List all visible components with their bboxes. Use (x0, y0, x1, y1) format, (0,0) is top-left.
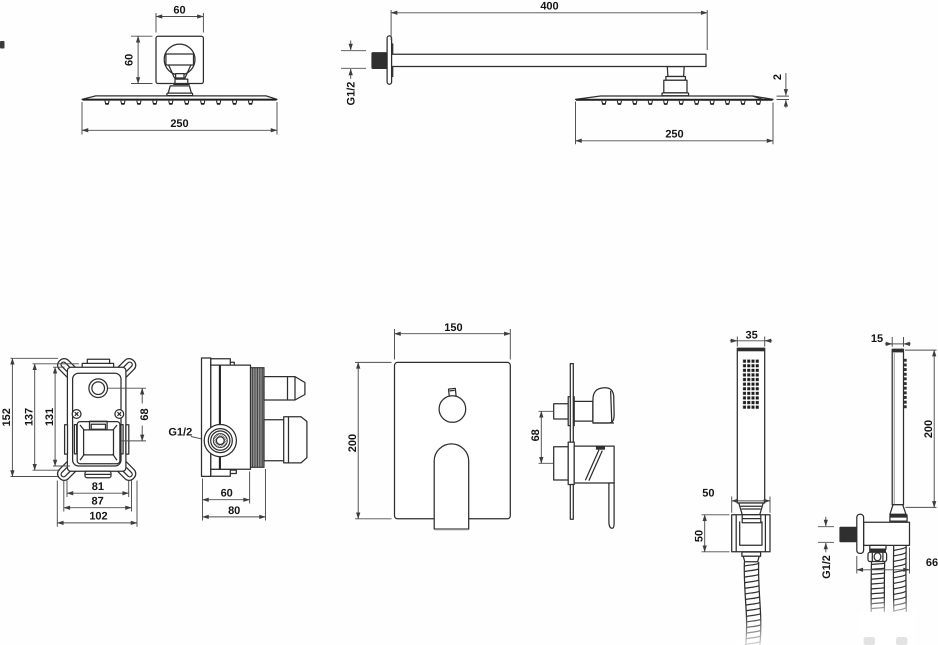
svg-text:15: 15 (871, 333, 883, 345)
svg-text:81: 81 (92, 481, 104, 493)
svg-text:200: 200 (923, 420, 935, 438)
svg-text:87: 87 (91, 496, 103, 508)
svg-text:2: 2 (772, 74, 784, 80)
svg-text:250: 250 (170, 118, 188, 130)
svg-text:60: 60 (123, 54, 135, 66)
svg-text:200: 200 (347, 434, 359, 452)
svg-text:G1/2: G1/2 (346, 82, 358, 106)
svg-text:68: 68 (530, 429, 542, 441)
svg-text:68: 68 (139, 408, 151, 420)
svg-text:102: 102 (89, 511, 107, 523)
svg-text:250: 250 (665, 129, 683, 141)
svg-text:G1/2: G1/2 (168, 427, 192, 439)
svg-text:50: 50 (693, 530, 705, 542)
svg-text:35: 35 (745, 329, 757, 341)
svg-text:80: 80 (228, 505, 240, 517)
svg-text:60: 60 (221, 487, 233, 499)
svg-text:60: 60 (173, 5, 185, 17)
svg-text:152: 152 (1, 408, 13, 426)
svg-text:50: 50 (702, 487, 714, 499)
svg-text:400: 400 (540, 0, 558, 12)
svg-text:150: 150 (444, 322, 462, 334)
svg-text:131: 131 (44, 408, 56, 426)
svg-text:66: 66 (926, 557, 938, 569)
svg-text:G1/2: G1/2 (821, 555, 833, 579)
svg-text:137: 137 (23, 408, 35, 426)
